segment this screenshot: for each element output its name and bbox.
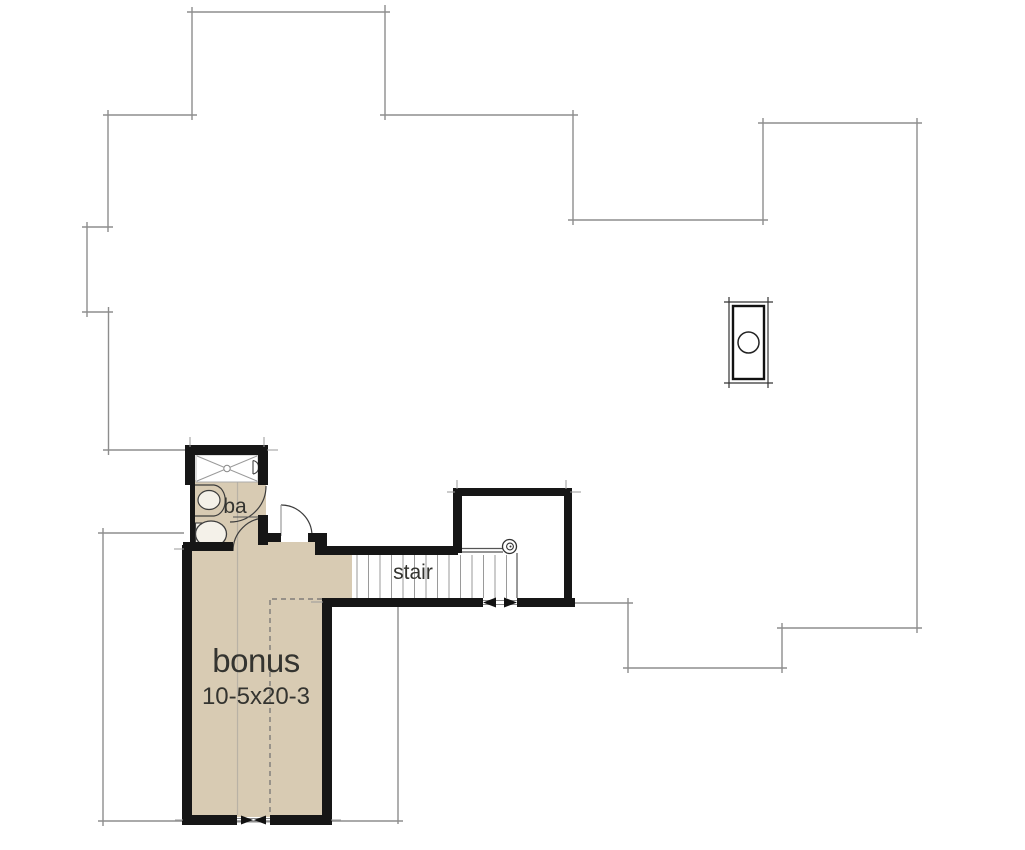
bonus-room-label: bonus: [176, 644, 336, 679]
shower-icon: [196, 455, 259, 482]
railing-volute-icon: [458, 540, 517, 554]
floorplan-canvas: ba stair bonus 10-5x20-3: [0, 0, 1025, 850]
bath-room-label: ba: [205, 496, 265, 518]
floorplan-drawing: [0, 0, 1025, 850]
bonus-room-dimensions: 10-5x20-3: [176, 684, 336, 709]
stair-label: stair: [363, 562, 463, 584]
chimney-icon: [724, 297, 773, 388]
